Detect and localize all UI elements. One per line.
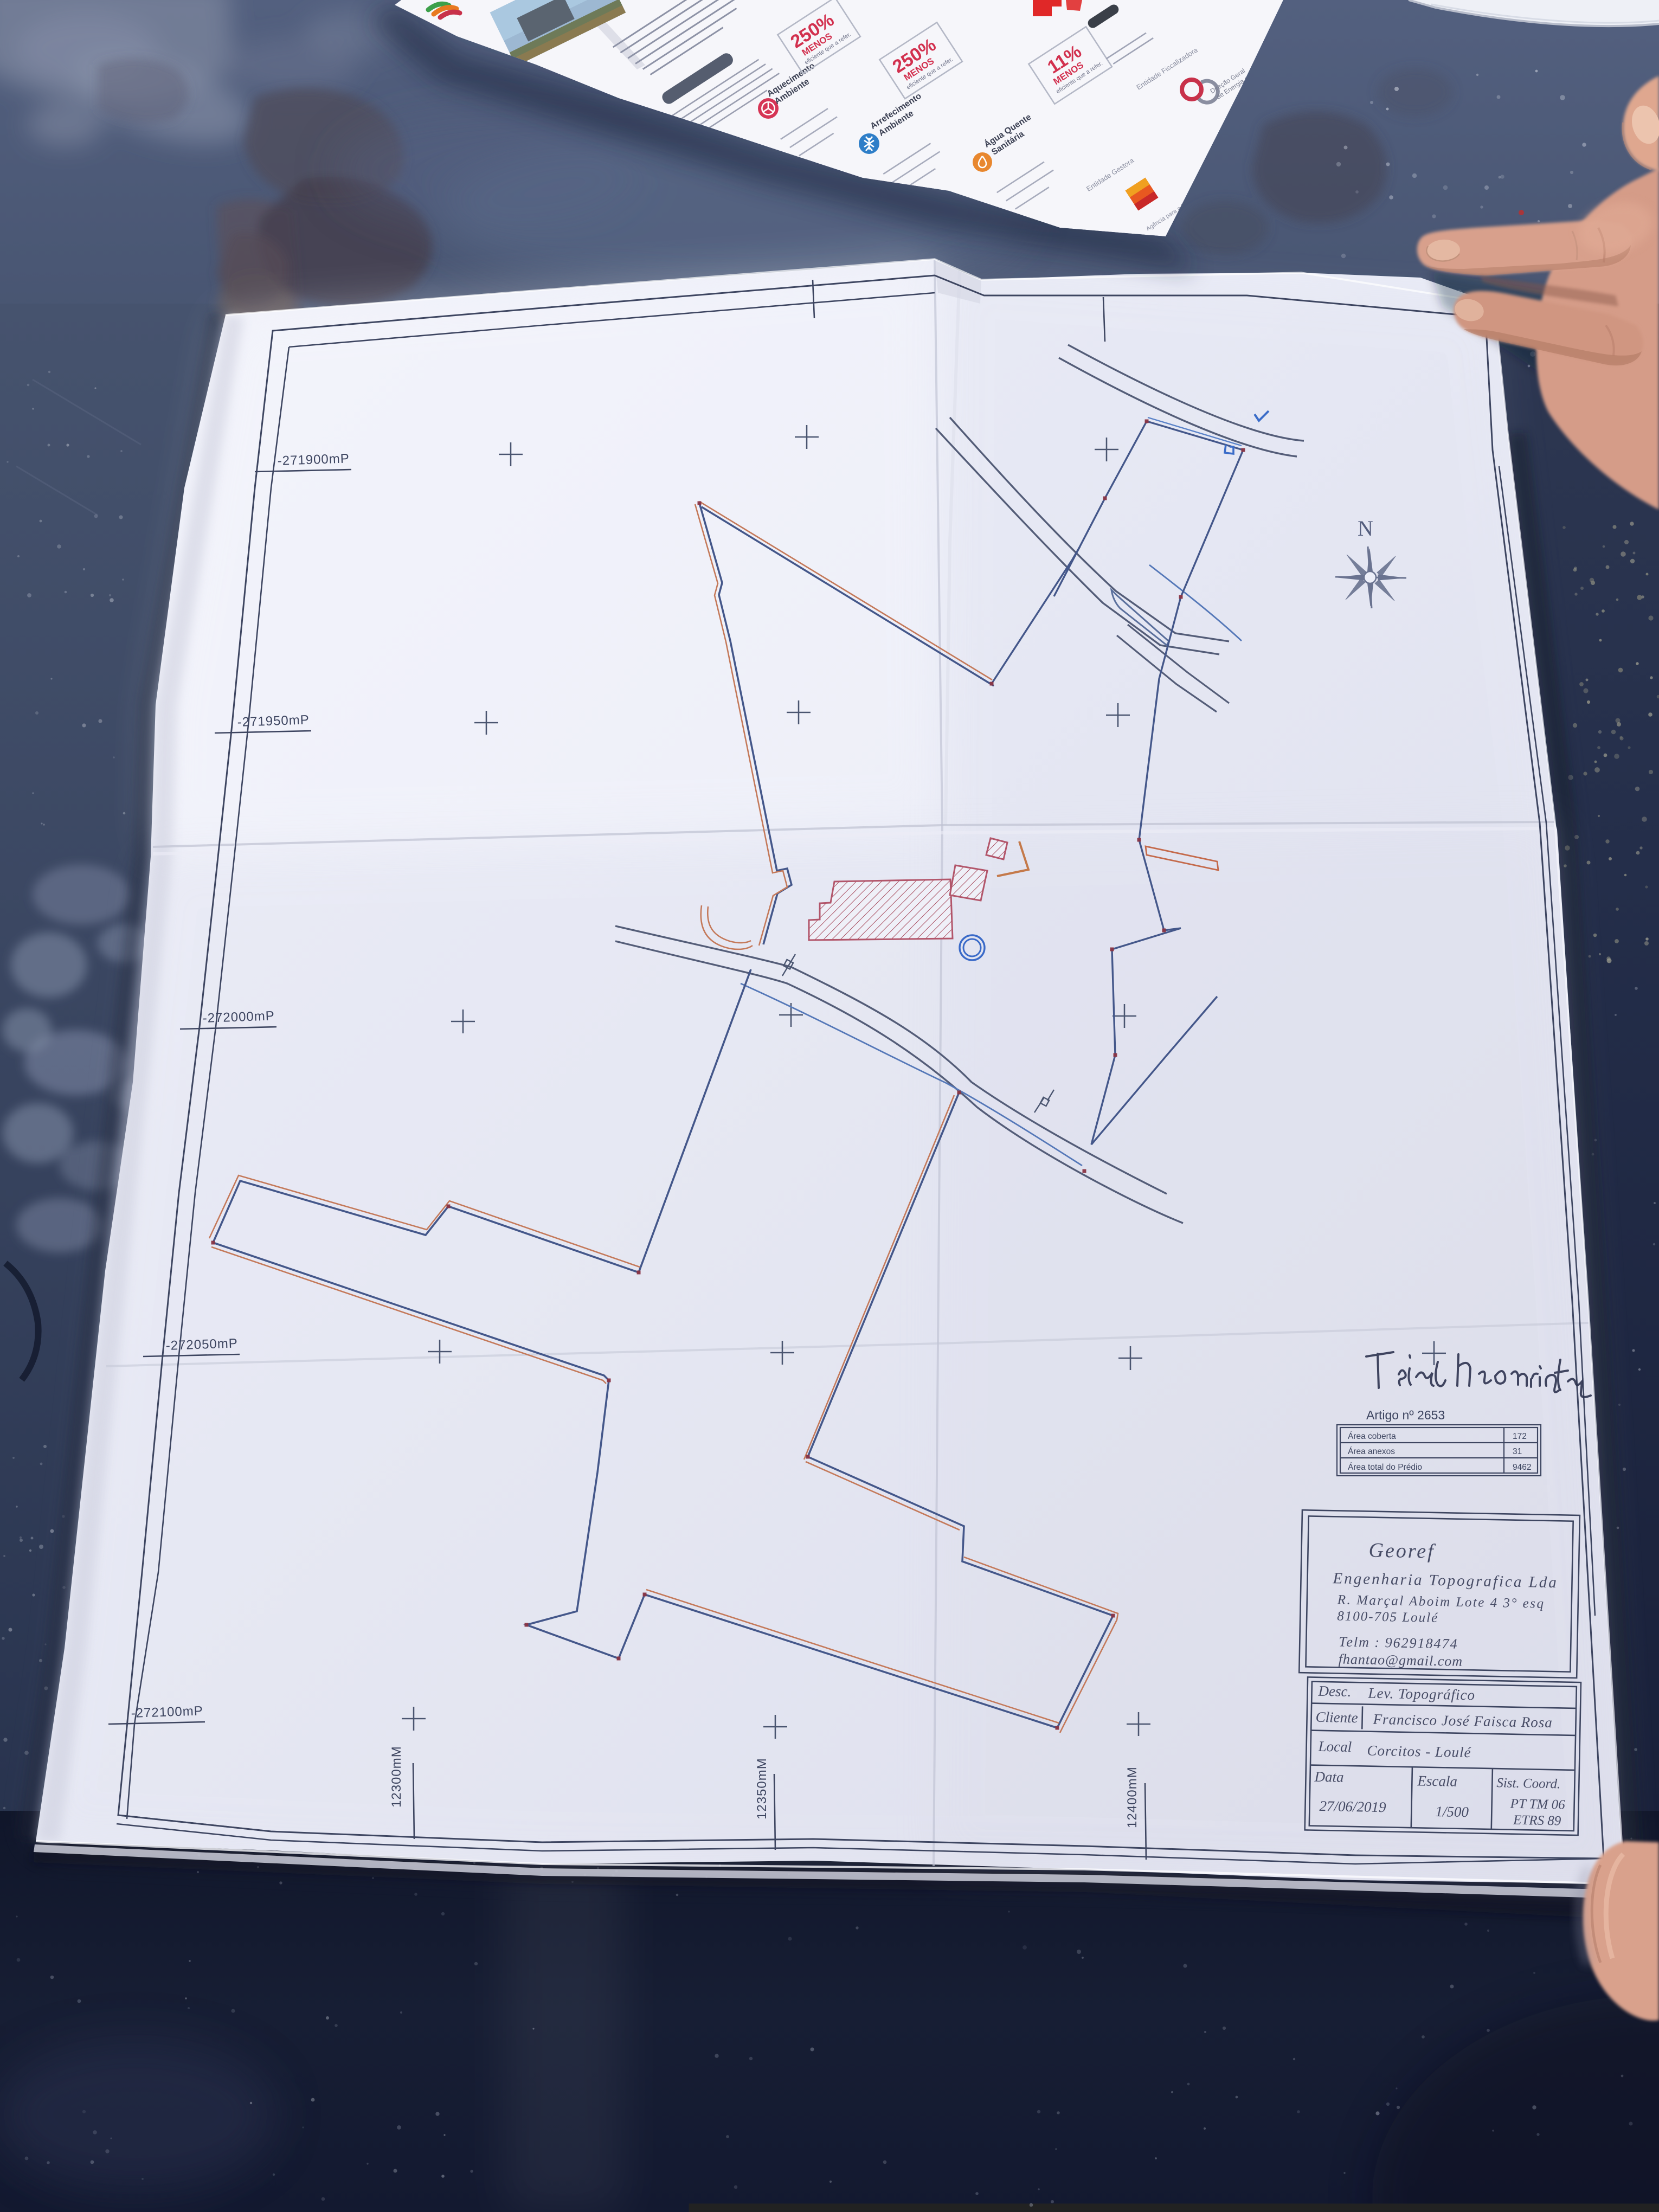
svg-text:Lev. Topográfico: Lev. Topográfico	[1367, 1685, 1475, 1703]
svg-text:Local: Local	[1317, 1738, 1352, 1755]
svg-text:Área coberta: Área coberta	[1348, 1432, 1396, 1441]
svg-text:1/500: 1/500	[1435, 1803, 1469, 1820]
svg-text:Artigo nº 2653: Artigo nº 2653	[1366, 1408, 1445, 1422]
svg-text:PT TM 06: PT TM 06	[1509, 1797, 1565, 1812]
svg-text:31: 31	[1513, 1447, 1522, 1456]
svg-text:Área anexos: Área anexos	[1348, 1447, 1395, 1456]
svg-text:172: 172	[1513, 1432, 1527, 1441]
svg-text:12350mM: 12350mM	[755, 1758, 769, 1819]
svg-text:-271900mP: -271900mP	[277, 451, 350, 468]
svg-text:-272000mP: -272000mP	[202, 1008, 275, 1026]
svg-text:8100-705 Loulé: 8100-705 Loulé	[1337, 1609, 1439, 1625]
svg-text:Área total do Prédio: Área total do Prédio	[1348, 1463, 1422, 1472]
svg-text:27/06/2019: 27/06/2019	[1319, 1798, 1386, 1815]
svg-text:Corcitos - Loulé: Corcitos - Loulé	[1367, 1742, 1471, 1761]
svg-text:Data: Data	[1314, 1769, 1344, 1785]
svg-text:Francisco José Faisca Rosa: Francisco José Faisca Rosa	[1372, 1711, 1553, 1731]
svg-text:Desc.: Desc.	[1317, 1683, 1351, 1700]
svg-text:Telm : 962918474: Telm : 962918474	[1339, 1634, 1458, 1652]
svg-text:12300mM: 12300mM	[389, 1746, 404, 1808]
svg-text:12400mM: 12400mM	[1125, 1766, 1140, 1828]
svg-text:Cliente: Cliente	[1315, 1709, 1358, 1726]
svg-text:ETRS 89: ETRS 89	[1513, 1813, 1561, 1829]
svg-text:Georef: Georef	[1368, 1539, 1436, 1563]
svg-text:9462: 9462	[1513, 1463, 1531, 1472]
svg-text:-272100mP: -272100mP	[131, 1703, 203, 1721]
svg-text:Sist. Coord.: Sist. Coord.	[1496, 1776, 1560, 1791]
svg-text:N: N	[1358, 516, 1373, 541]
svg-text:fhantao@gmail.com: fhantao@gmail.com	[1338, 1651, 1463, 1669]
svg-text:Escala: Escala	[1417, 1772, 1457, 1789]
svg-text:-272050mP: -272050mP	[165, 1336, 238, 1353]
svg-text:-271950mP: -271950mP	[237, 712, 310, 730]
